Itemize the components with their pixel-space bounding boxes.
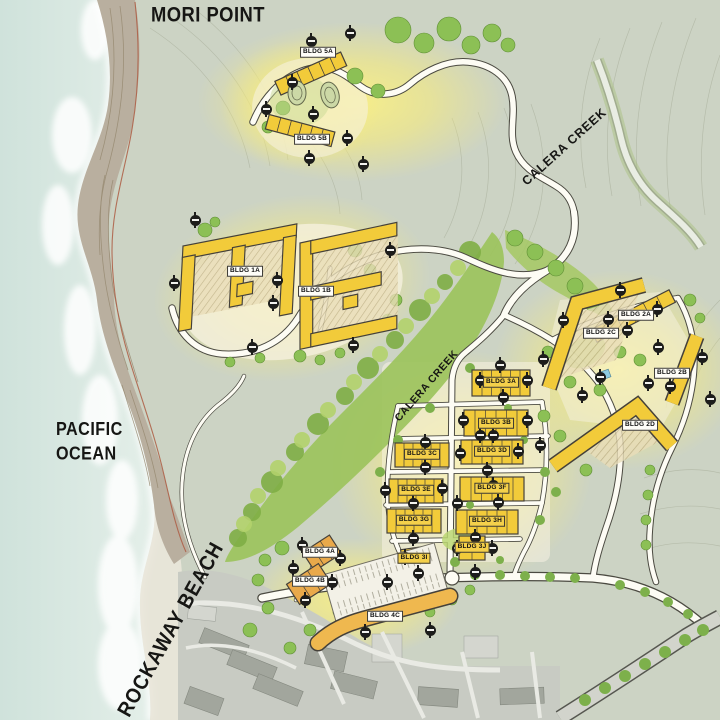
pacific-ocean-label-line1: PACIFIC xyxy=(56,417,123,441)
building-label-chip: BLDG 3B xyxy=(478,418,514,429)
section-marker-icon xyxy=(653,342,664,353)
section-marker-icon xyxy=(288,563,299,574)
section-marker-icon xyxy=(475,430,486,441)
section-marker-icon xyxy=(348,340,359,351)
section-marker-icon xyxy=(360,627,371,638)
section-marker-icon xyxy=(385,245,396,256)
building-label-chip: BLDG 3G xyxy=(396,515,432,526)
section-marker-icon xyxy=(665,381,676,392)
section-marker-icon xyxy=(498,392,509,403)
section-marker-icon xyxy=(705,394,716,405)
section-marker-icon xyxy=(413,568,424,579)
section-marker-icon xyxy=(420,437,431,448)
section-marker-icon xyxy=(622,325,633,336)
section-marker-icon xyxy=(408,533,419,544)
building-label-chip: BLDG 4B xyxy=(292,576,328,587)
building-label-chip: BLDG 2D xyxy=(622,420,658,431)
section-marker-icon xyxy=(300,595,311,606)
section-marker-icon xyxy=(535,440,546,451)
section-marker-icon xyxy=(538,354,549,365)
section-marker-icon xyxy=(272,275,283,286)
section-marker-icon xyxy=(493,497,504,508)
building-label-chip: BLDG 3C xyxy=(404,449,440,460)
section-marker-icon xyxy=(169,278,180,289)
building-label-chip: BLDG 5B xyxy=(294,134,330,145)
building-label-chip: BLDG 2C xyxy=(583,328,619,339)
section-marker-icon xyxy=(577,390,588,401)
building-label-chip: BLDG 2A xyxy=(618,310,654,321)
section-marker-icon xyxy=(308,109,319,120)
section-marker-icon xyxy=(287,77,298,88)
section-marker-icon xyxy=(455,448,466,459)
section-marker-icon xyxy=(488,430,499,441)
section-marker-icon xyxy=(380,485,391,496)
section-marker-icon xyxy=(425,625,436,636)
section-marker-icon xyxy=(420,462,431,473)
building-label-chip: BLDG 3I xyxy=(397,553,430,564)
section-marker-icon xyxy=(437,483,448,494)
pacific-ocean-label: PACIFIC OCEAN xyxy=(56,417,123,466)
section-marker-icon xyxy=(470,567,481,578)
section-marker-icon xyxy=(522,375,533,386)
section-marker-icon xyxy=(268,298,279,309)
terrain-map-artwork xyxy=(0,0,720,720)
building-label-chip: BLDG 3E xyxy=(398,485,434,496)
building-label-chip: BLDG 3A xyxy=(483,377,519,388)
section-marker-icon xyxy=(495,360,506,371)
pacific-ocean-label-line2: OCEAN xyxy=(56,441,123,465)
section-marker-icon xyxy=(327,577,338,588)
section-marker-icon xyxy=(482,465,493,476)
section-marker-icon xyxy=(247,342,258,353)
building-label-chip: BLDG 3F xyxy=(474,483,509,494)
section-marker-icon xyxy=(458,415,469,426)
section-marker-icon xyxy=(522,415,533,426)
section-marker-icon xyxy=(452,498,463,509)
section-marker-icon xyxy=(558,315,569,326)
section-marker-icon xyxy=(513,446,524,457)
section-marker-icon xyxy=(304,153,315,164)
section-marker-icon xyxy=(306,36,317,47)
section-marker-icon xyxy=(345,28,356,39)
section-marker-icon xyxy=(595,372,606,383)
section-marker-icon xyxy=(408,498,419,509)
building-label-chip: BLDG 3D xyxy=(474,446,510,457)
section-marker-icon xyxy=(603,314,614,325)
building-label-chip: BLDG 4C xyxy=(367,611,403,622)
building-label-chip: BLDG 1A xyxy=(227,266,263,277)
section-marker-icon xyxy=(358,159,369,170)
building-label-chip: BLDG 4A xyxy=(302,547,338,558)
building-label-chip: BLDG 5A xyxy=(300,47,336,58)
section-marker-icon xyxy=(697,352,708,363)
mori-point-label: MORI POINT xyxy=(151,3,265,28)
building-label-chip: BLDG 3J xyxy=(455,542,490,553)
building-label-chip: BLDG 1B xyxy=(298,286,334,297)
site-plan: MORI POINT PACIFIC OCEAN ROCKAWAY BEACH … xyxy=(0,0,720,720)
building-label-chip: BLDG 3H xyxy=(469,516,505,527)
section-marker-icon xyxy=(382,577,393,588)
section-marker-icon xyxy=(643,378,654,389)
building-label-chip: BLDG 2B xyxy=(654,368,690,379)
section-marker-icon xyxy=(261,104,272,115)
section-marker-icon xyxy=(190,215,201,226)
section-marker-icon xyxy=(342,133,353,144)
section-marker-icon xyxy=(615,285,626,296)
